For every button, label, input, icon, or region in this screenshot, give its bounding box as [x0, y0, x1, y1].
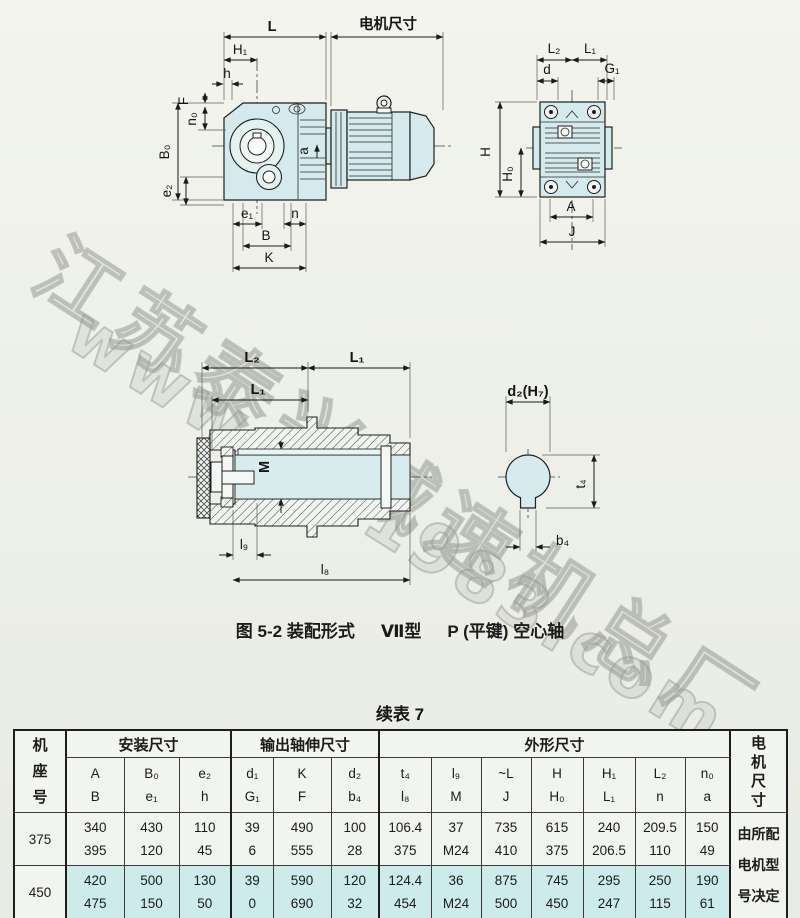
dim-label-L1b-section: L₁: [251, 382, 266, 398]
value-cell: 13050: [179, 866, 231, 918]
dim-label-G1: G₁: [604, 61, 620, 76]
caption-shaft-type: P (平键) 空心轴: [447, 617, 564, 642]
sym-header-cell: l₉M: [431, 758, 481, 813]
dim-label-a: a: [296, 147, 311, 155]
value-cell: 106.4375: [379, 813, 431, 866]
value-cell: 745450: [531, 866, 583, 918]
dim-label-b4: b₄: [556, 533, 569, 548]
value-cell: 420475: [66, 866, 124, 918]
sym-header-cell: KF: [273, 758, 331, 813]
value-cell: 396: [231, 813, 273, 866]
dim-label-e2: e₂: [159, 185, 174, 198]
value-cell: 12032: [331, 866, 379, 918]
motor-size-column-header: 电 机 尺 寸: [730, 730, 787, 813]
machine-size-column-header: 机 座 号: [14, 730, 66, 813]
dim-label-L: L: [268, 19, 277, 35]
table-title: 续表 7: [0, 700, 800, 725]
dim-label-B0: B₀: [157, 145, 172, 160]
dim-label-d: d: [543, 62, 551, 77]
keyway-view: d₂(H₇) t₄ b₄: [498, 384, 600, 551]
sym-header-cell: AB: [66, 758, 124, 813]
value-cell: 390: [231, 866, 273, 918]
machine-size-450: 450: [14, 866, 66, 918]
scanned-catalog-page: 江苏泰兴减速机总厂 www.tx-1983.com: [0, 0, 800, 918]
dim-label-L1: L₁: [584, 41, 597, 56]
group-header-mounting: 安装尺寸: [66, 730, 231, 758]
dim-label-B: B: [261, 228, 270, 243]
figure-caption: 图 5-2 装配形式 Ⅶ型 P (平键) 空心轴: [0, 617, 800, 642]
sym-header-cell: H₁L₁: [583, 758, 635, 813]
sym-header-cell: d₂b₄: [331, 758, 379, 813]
dim-label-H: H: [478, 147, 493, 157]
dim-label-n: n: [291, 206, 299, 221]
value-cell: 590690: [273, 866, 331, 918]
motor-note-cell: 由所配 电机型 号决定: [730, 813, 787, 918]
dim-label-n0: n₀: [184, 112, 199, 125]
sym-header-cell: HH₀: [531, 758, 583, 813]
value-cell: 124.4454: [379, 866, 431, 918]
value-cell: 250115: [635, 866, 685, 918]
value-cell: 735410: [481, 813, 531, 866]
dim-label-M: M: [257, 461, 273, 473]
sym-header-cell: t₄l₈: [379, 758, 431, 813]
dim-label-L1a-section: L₁: [350, 350, 365, 366]
sym-header-cell: n₀a: [685, 758, 730, 813]
value-cell: 209.5110: [635, 813, 685, 866]
value-cell: 430120: [124, 813, 179, 866]
value-cell: 340395: [66, 813, 124, 866]
dim-label-d2H7: d₂(H₇): [507, 384, 548, 400]
caption-figure-number: 图 5-2 装配形式: [236, 617, 355, 642]
group-header-overall: 外形尺寸: [379, 730, 730, 758]
technical-drawings: L 电机尺寸 H₁ h F n₀ B₀ e₂ a e₁ n B K: [0, 0, 800, 610]
value-cell: 295247: [583, 866, 635, 918]
value-cell: 500150: [124, 866, 179, 918]
dim-label-K: K: [264, 250, 273, 265]
caption-type: Ⅶ型: [381, 617, 422, 642]
group-header-output-shaft: 输出轴伸尺寸: [231, 730, 379, 758]
dim-label-h: h: [223, 66, 231, 81]
value-cell: 240206.5: [583, 813, 635, 866]
value-cell: 11045: [179, 813, 231, 866]
value-cell: 19061: [685, 866, 730, 918]
dim-label-H0: H₀: [500, 166, 515, 181]
value-cell: 10028: [331, 813, 379, 866]
machine-size-375: 375: [14, 813, 66, 866]
side-view: L 电机尺寸 H₁ h F n₀ B₀ e₂ a e₁ n B K: [157, 15, 452, 272]
dim-label-l9: l₉: [240, 537, 248, 552]
dim-label-t4: t₄: [573, 479, 588, 488]
dim-label-A: A: [566, 199, 575, 214]
dim-label-H1: H₁: [233, 42, 248, 57]
sym-header-cell: ~LJ: [481, 758, 531, 813]
dimension-spec-table: 机 座 号 安装尺寸 输出轴伸尺寸 外形尺寸 电 机 尺 寸 AB B₀e₁ e…: [13, 729, 788, 918]
sym-header-cell: d₁G₁: [231, 758, 273, 813]
dim-label-L2: L₂: [548, 41, 561, 56]
value-cell: 875500: [481, 866, 531, 918]
dim-label-l8: l₈: [321, 562, 330, 577]
sym-header-cell: B₀e₁: [124, 758, 179, 813]
value-cell: 37M24: [431, 813, 481, 866]
dim-label-motor-size: 电机尺寸: [359, 15, 417, 33]
hollow-shaft-section: L₂ L₁ L₁ M l₉ l₈: [188, 350, 432, 585]
dim-label-J: J: [569, 224, 576, 239]
front-view: L₂ L₁ d G₁ H H₀ A J: [478, 41, 622, 250]
value-cell: 490555: [273, 813, 331, 866]
eyebolt-icon: [377, 96, 391, 113]
dim-label-L2-section: L₂: [244, 350, 259, 366]
dim-label-e1: e₁: [241, 206, 254, 221]
dim-label-F: F: [176, 97, 191, 105]
value-cell: 615375: [531, 813, 583, 866]
sym-header-cell: L₂n: [635, 758, 685, 813]
value-cell: 36M24: [431, 866, 481, 918]
sym-header-cell: e₂h: [179, 758, 231, 813]
value-cell: 15049: [685, 813, 730, 866]
